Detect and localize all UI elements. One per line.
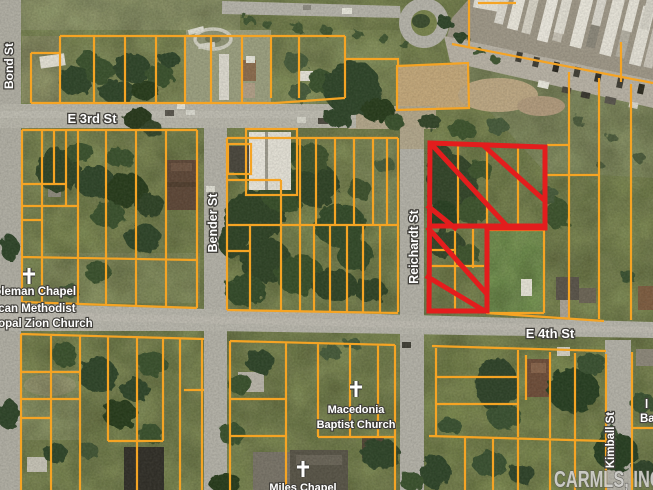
svg-text:Kimball St: Kimball St	[605, 412, 617, 468]
svg-text:E 3rd St: E 3rd St	[67, 111, 117, 126]
svg-text:Macedonia: Macedonia	[328, 404, 386, 416]
svg-text:E 4th St: E 4th St	[526, 326, 575, 341]
svg-text:African Methodist: African Methodist	[0, 303, 76, 315]
svg-text:Baptist Church: Baptist Church	[317, 419, 396, 431]
svg-text:l: l	[645, 399, 648, 411]
svg-text:Reichardt St: Reichardt St	[407, 209, 421, 283]
svg-text:Bender St: Bender St	[206, 193, 220, 253]
svg-text:Coleman Chapel: Coleman Chapel	[0, 286, 76, 298]
svg-text:CARMLS, INC: CARMLS, INC	[554, 467, 653, 490]
svg-text:Ba: Ba	[640, 413, 653, 425]
svg-text:Miles Chapel: Miles Chapel	[269, 482, 336, 490]
svg-text:Bond St: Bond St	[2, 43, 16, 89]
svg-text:Episcopal Zion Church: Episcopal Zion Church	[0, 318, 93, 330]
